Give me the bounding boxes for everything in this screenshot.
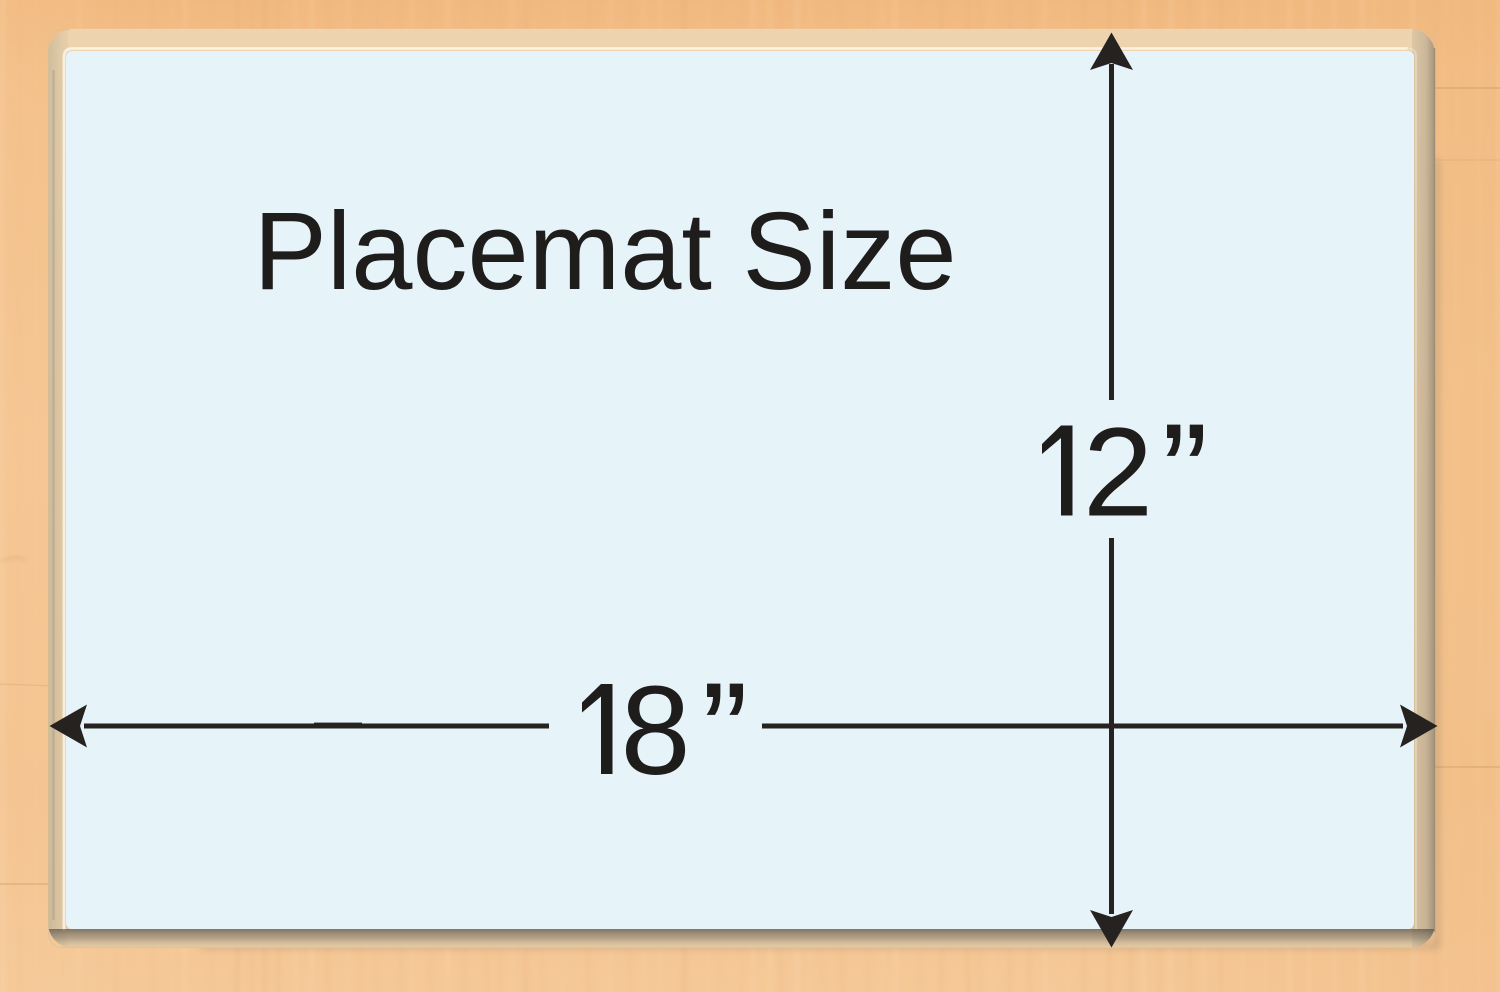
svg-text:”: ” <box>702 653 749 810</box>
svg-text:Placemat Size: Placemat Size <box>253 190 956 313</box>
svg-text:2: 2 <box>1083 402 1153 543</box>
svg-text:8: 8 <box>621 660 691 801</box>
svg-text:”: ” <box>1162 394 1209 551</box>
